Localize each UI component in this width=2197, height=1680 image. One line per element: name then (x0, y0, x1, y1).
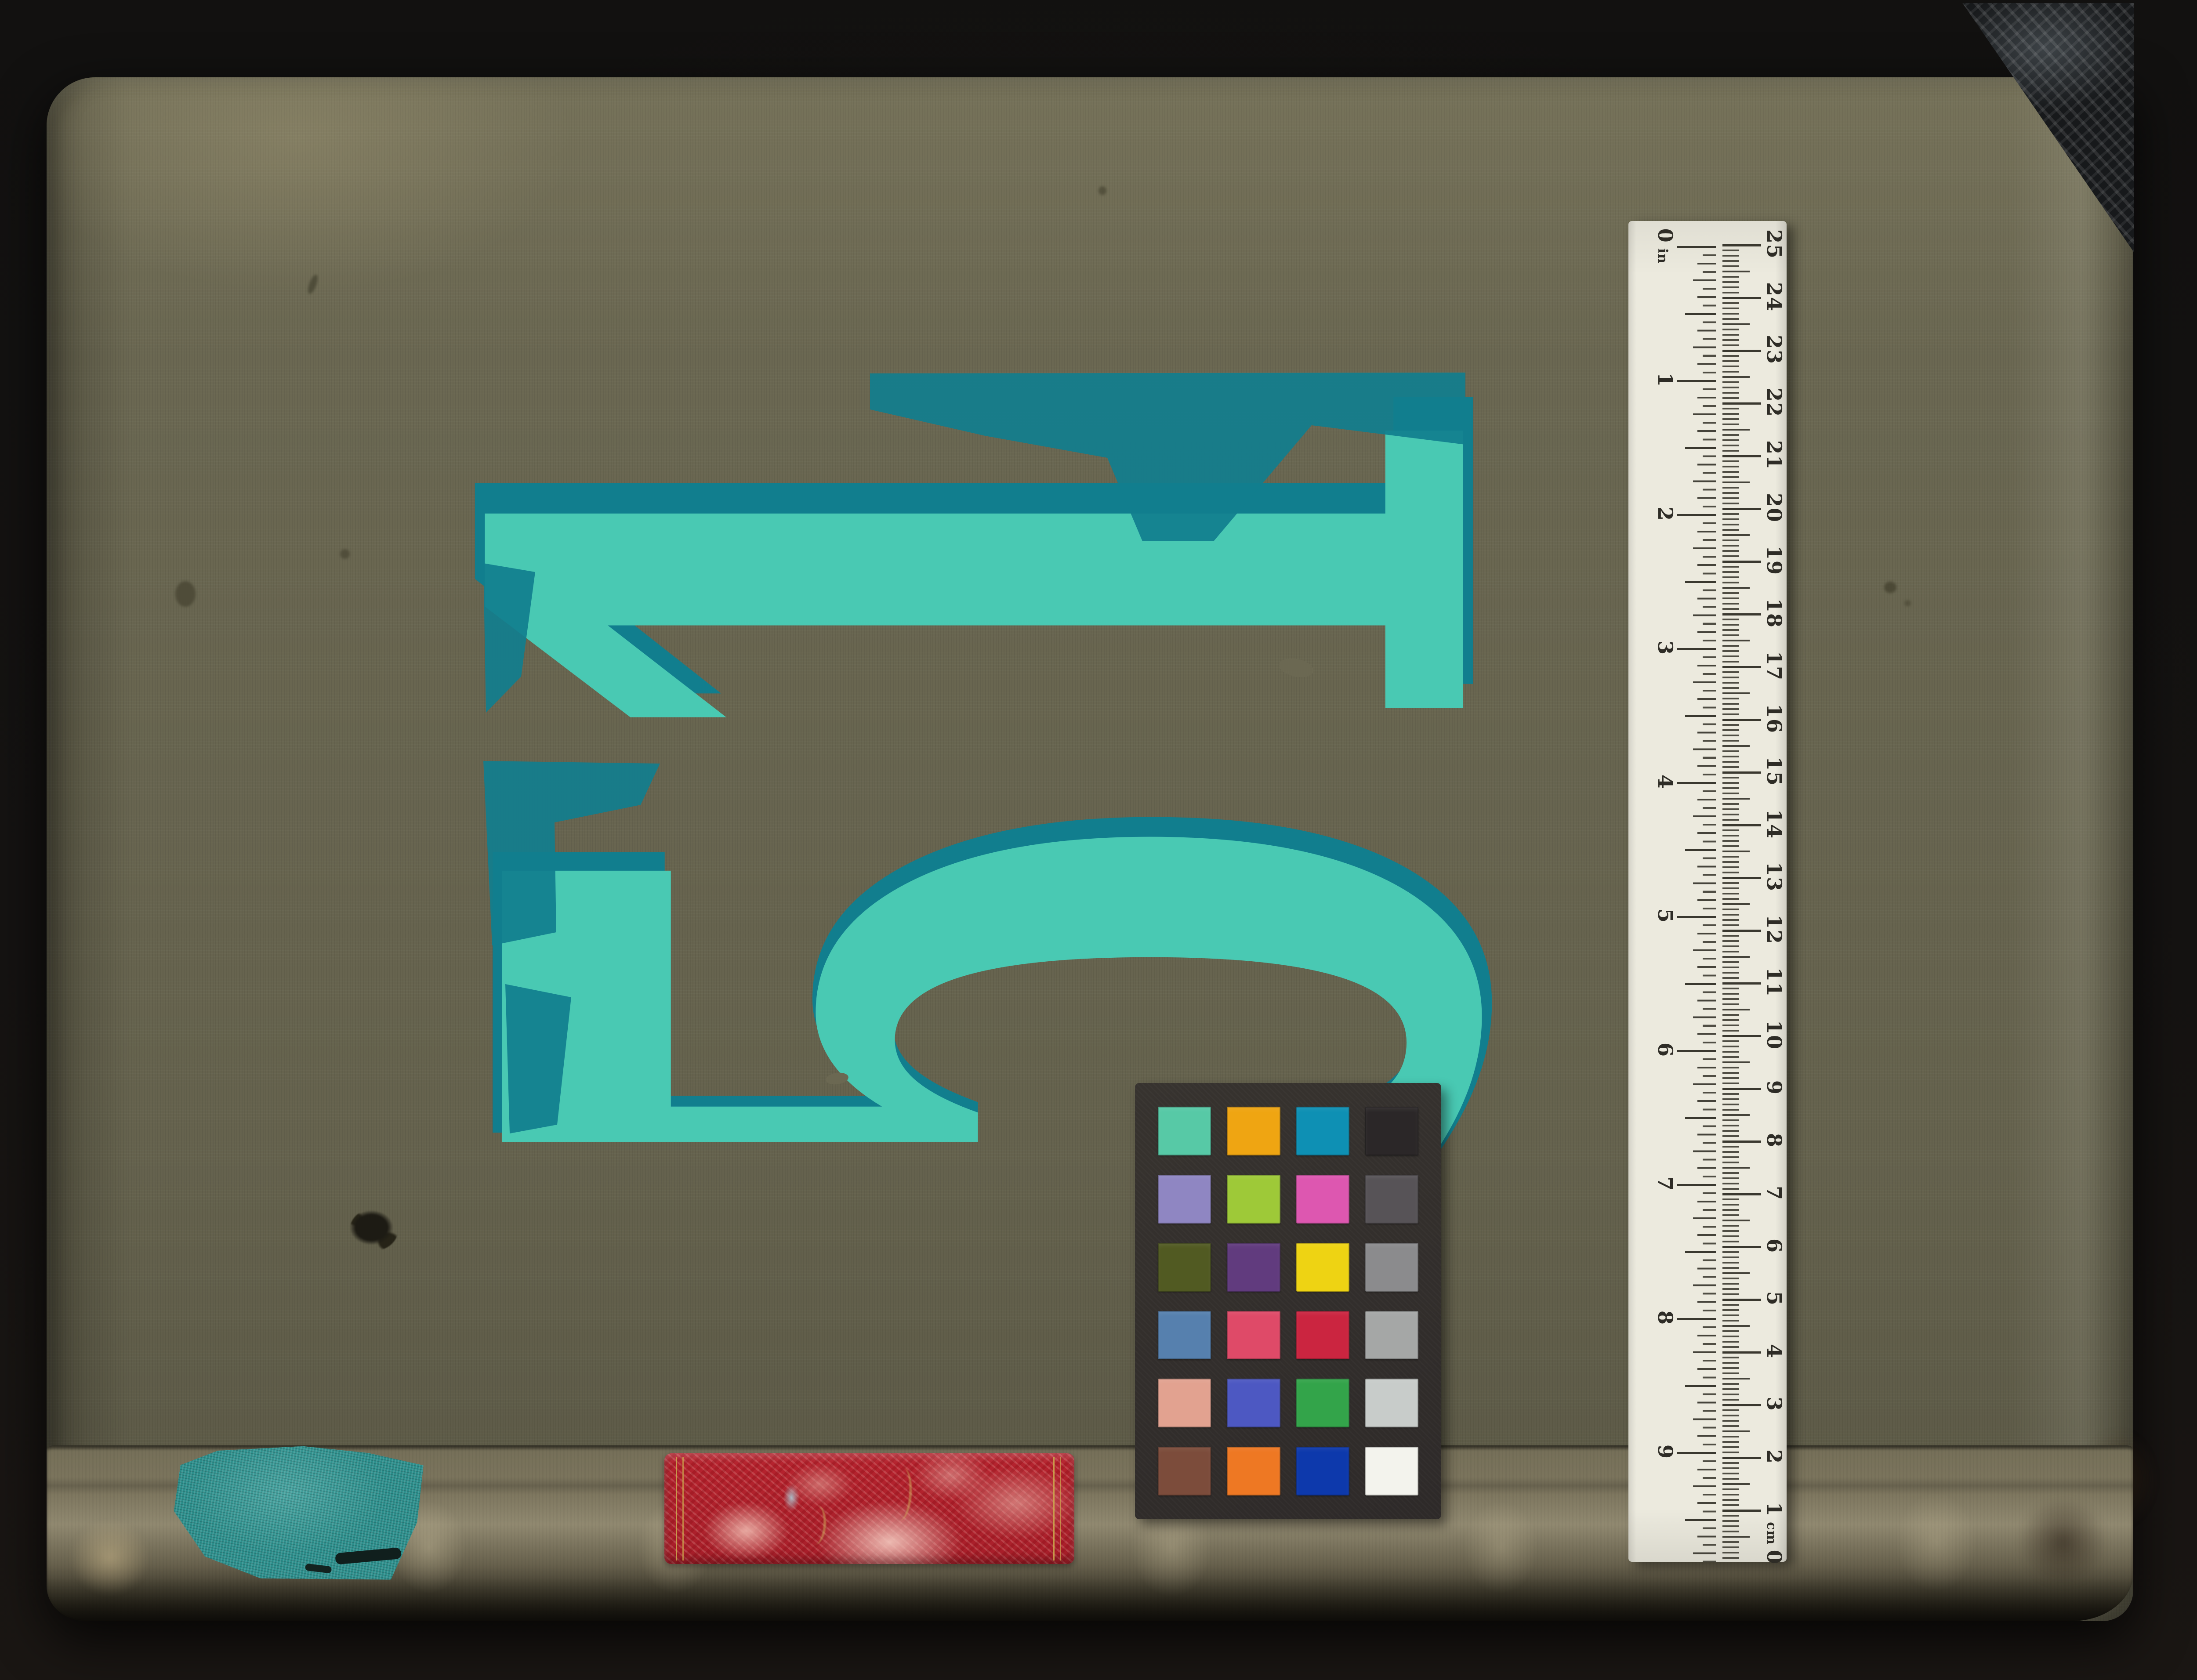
color-swatch (1365, 1311, 1418, 1360)
cm-label: 19 (1762, 546, 1786, 576)
color-swatch (1158, 1447, 1211, 1495)
color-swatch (1227, 1107, 1280, 1155)
book-spine (47, 1445, 2133, 1621)
cm-label: 9 (1762, 1080, 1786, 1095)
cm-label: 11 (1762, 967, 1786, 997)
color-swatch (1365, 1379, 1418, 1427)
cm-label: 2 (1762, 1449, 1786, 1464)
color-swatch (1158, 1379, 1211, 1427)
color-checker-card (1135, 1083, 1441, 1519)
spine-label (664, 1453, 1074, 1564)
cm-label: cm 0 (1762, 1522, 1786, 1564)
cover-stain (175, 581, 196, 607)
cm-label: 14 (1762, 809, 1786, 839)
cm-label: 17 (1762, 651, 1786, 681)
spine-patch (173, 1444, 426, 1584)
ruler: 0 in123456789 25242322212019181716151413… (1628, 221, 1787, 1562)
cover-stain (1904, 600, 1911, 606)
cover-ink-blot (350, 1209, 398, 1251)
cm-label: 22 (1762, 387, 1786, 417)
inch-label: 4 (1653, 775, 1677, 789)
inch-label: 0 in (1653, 228, 1677, 264)
cover-stain (340, 549, 350, 559)
inch-label: 3 (1653, 641, 1677, 655)
color-swatch (1296, 1107, 1349, 1155)
cm-label: 7 (1762, 1186, 1786, 1201)
color-swatch (1365, 1243, 1418, 1292)
color-swatch (1296, 1447, 1349, 1495)
cm-label: 13 (1762, 862, 1786, 892)
label-gold-border (1053, 1457, 1061, 1561)
label-gold-border (676, 1457, 684, 1561)
color-swatch (1227, 1311, 1280, 1360)
label-gold-script (805, 1505, 827, 1546)
inch-label: 7 (1653, 1177, 1677, 1191)
cm-label: 1 (1762, 1502, 1786, 1517)
cm-label: 25 (1762, 229, 1786, 259)
inch-label: 8 (1653, 1311, 1677, 1325)
cm-label: 8 (1762, 1133, 1786, 1148)
color-swatch (1227, 1379, 1280, 1427)
worn-corner (57, 1507, 163, 1608)
cm-label: 20 (1762, 493, 1786, 523)
color-swatch (1365, 1447, 1418, 1495)
worn-corner (2006, 1485, 2120, 1599)
color-swatch (1158, 1175, 1211, 1224)
spine-patch-mark (335, 1547, 402, 1564)
color-swatch (1296, 1379, 1349, 1427)
cm-label: 16 (1762, 704, 1786, 734)
cm-label: 24 (1762, 282, 1786, 312)
inch-label: 5 (1653, 909, 1677, 923)
cm-label: 10 (1762, 1020, 1786, 1050)
color-swatch (1158, 1243, 1211, 1292)
cm-label: 3 (1762, 1397, 1786, 1412)
cm-label: 15 (1762, 757, 1786, 786)
label-gold-script (890, 1467, 914, 1521)
cm-label: 5 (1762, 1291, 1786, 1306)
color-swatch (1296, 1311, 1349, 1360)
color-swatch (1227, 1175, 1280, 1224)
spine-patch-mark (305, 1564, 332, 1574)
cover-stain (1098, 186, 1106, 195)
cm-label: 12 (1762, 915, 1786, 945)
inch-label: 9 (1653, 1445, 1677, 1459)
book-cover (47, 77, 2133, 1621)
cm-label: 6 (1762, 1238, 1786, 1253)
color-swatch (1227, 1447, 1280, 1495)
cm-label: 23 (1762, 335, 1786, 365)
inch-label: 2 (1653, 507, 1677, 521)
color-swatch (1296, 1175, 1349, 1224)
inch-label: 6 (1653, 1043, 1677, 1057)
color-swatch (1227, 1243, 1280, 1292)
color-swatch (1365, 1107, 1418, 1155)
color-swatch (1365, 1175, 1418, 1224)
cm-label: 18 (1762, 598, 1786, 628)
photo-scene: 51 51 0 in123456789 25242322212 (0, 0, 2197, 1680)
cm-label: 4 (1762, 1344, 1786, 1359)
color-swatch (1158, 1311, 1211, 1360)
cover-stain (306, 274, 320, 295)
cover-stain (1884, 582, 1896, 593)
cm-label: 21 (1762, 440, 1786, 470)
color-swatch (1296, 1243, 1349, 1292)
color-swatch (1158, 1107, 1211, 1155)
inch-label: 1 (1653, 373, 1677, 387)
